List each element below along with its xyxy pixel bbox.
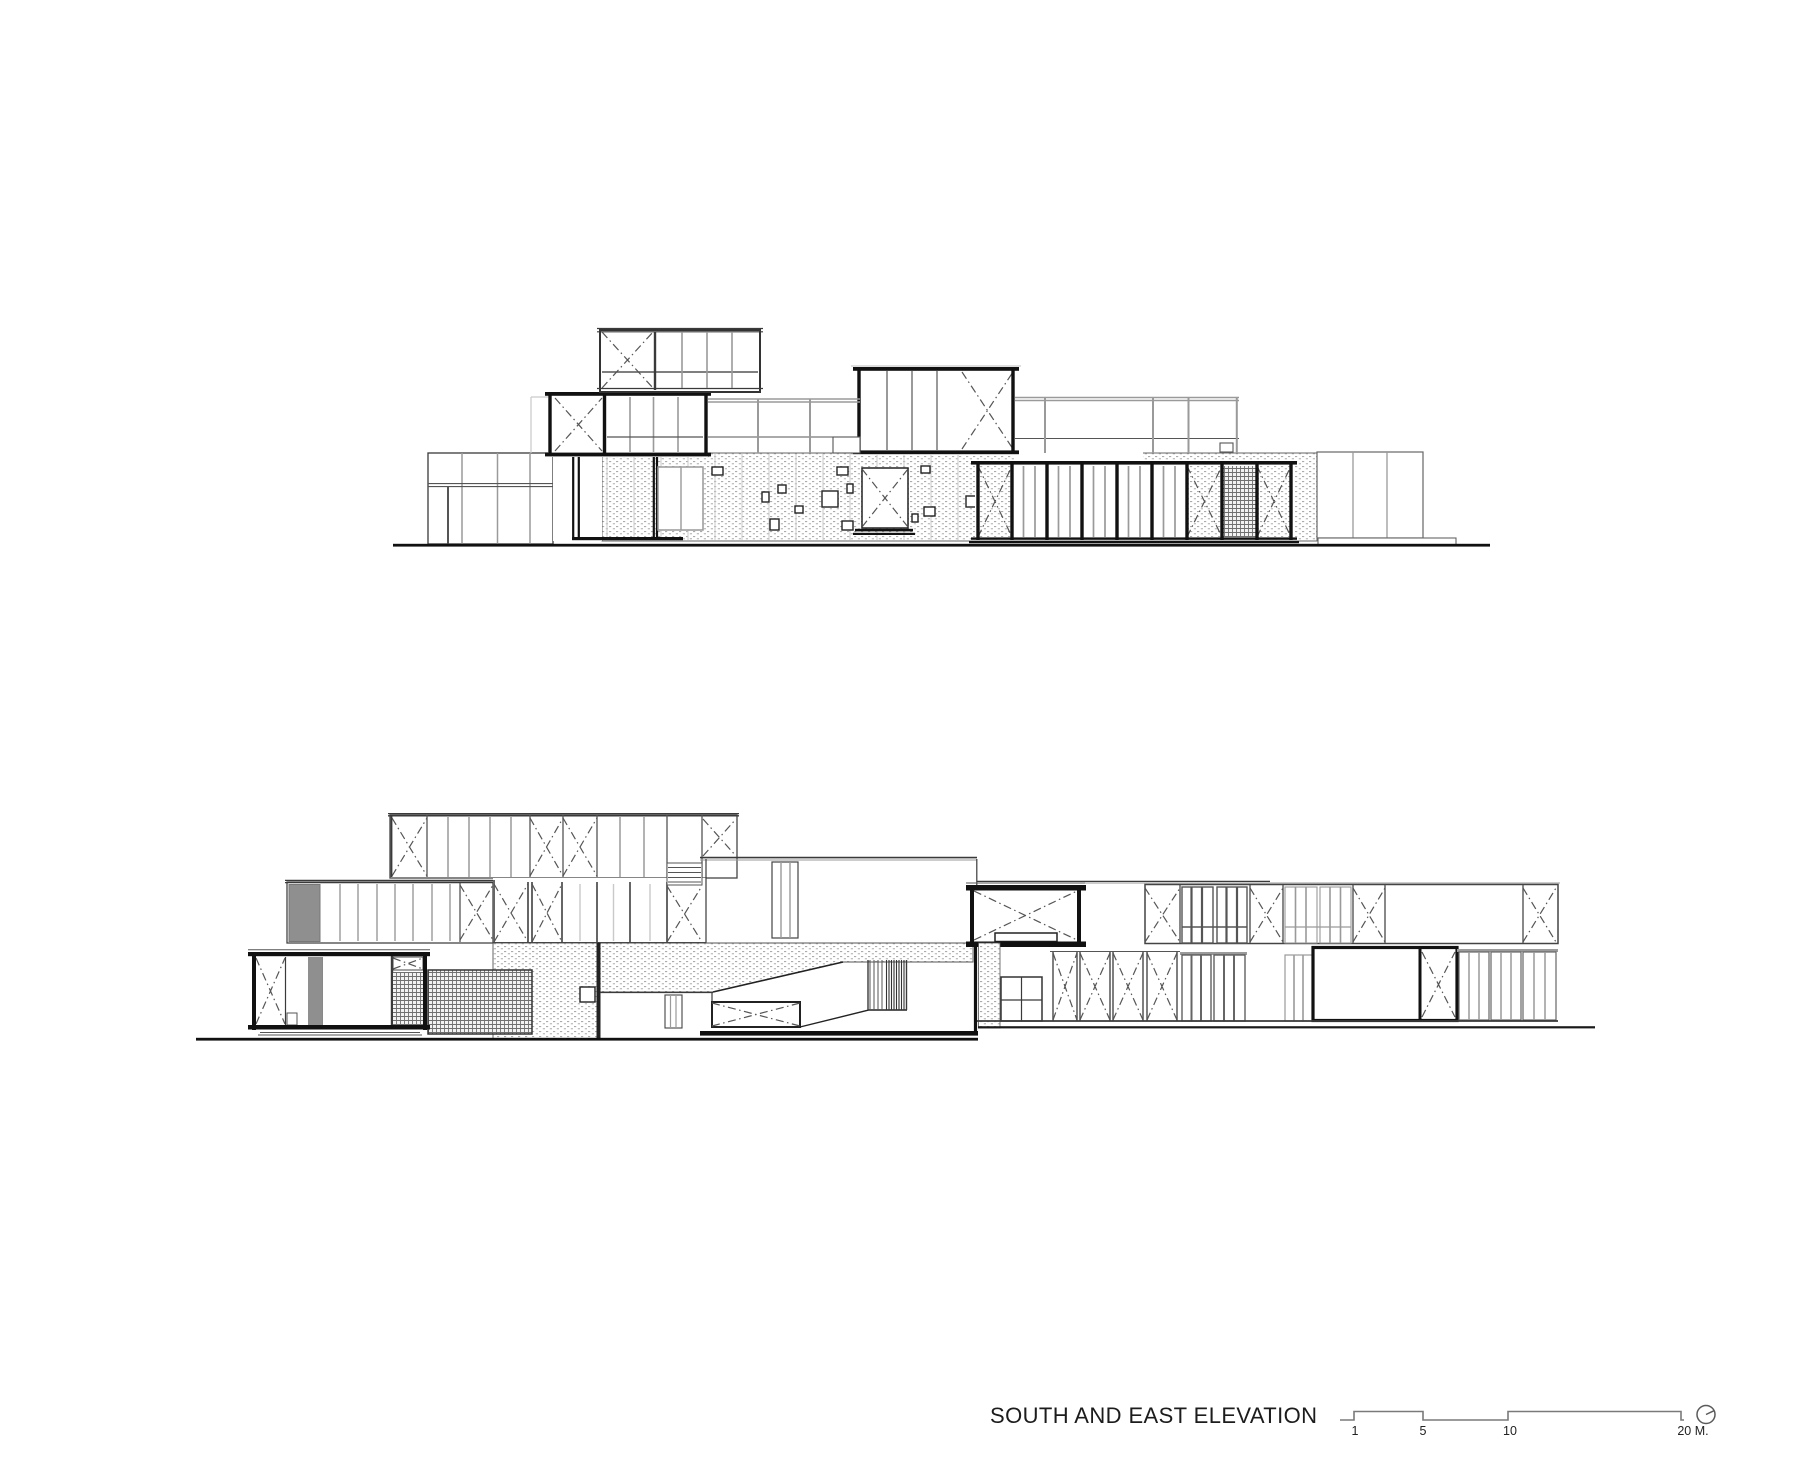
- east-gray-band: [285, 880, 495, 943]
- east-right-building: [966, 881, 1560, 1028]
- south-mid-box: [531, 392, 711, 457]
- braced-doorway: [853, 468, 915, 535]
- gray-stripe-panel: [308, 957, 322, 1025]
- east-ground-line-right: [978, 1026, 1595, 1028]
- scale-tick-20m: 20 M.: [1677, 1424, 1708, 1438]
- south-ground-line: [393, 544, 1490, 547]
- south-right-box: [851, 366, 1021, 455]
- scale-tick-10: 10: [1503, 1424, 1517, 1438]
- south-left-wing: [428, 453, 553, 544]
- basement-window: [665, 995, 682, 1028]
- box-screen-panel: [393, 972, 423, 1025]
- roof-deck: [1014, 399, 1143, 461]
- sheet-background: [0, 0, 1800, 1472]
- stair-x-panel: [712, 1002, 800, 1027]
- screen-wall: [428, 970, 532, 1034]
- right-upper-band: [1085, 883, 1560, 944]
- louver-strip: [667, 863, 702, 885]
- drawing-title: SOUTH AND EAST ELEVATION: [990, 1403, 1317, 1428]
- south-top-box: [597, 329, 763, 393]
- right-lower-window: [1001, 977, 1042, 1021]
- lower-x-bays: [1050, 952, 1180, 1022]
- heavy-sliding-box: [1313, 948, 1457, 1021]
- east-left-box: [248, 950, 430, 1035]
- title-block: SOUTH AND EAST ELEVATION: [990, 1403, 1317, 1428]
- scale-tick-5: 5: [1420, 1424, 1427, 1438]
- elevation-drawing: SOUTH AND EAST ELEVATION 1 5 10 20 M.: [0, 0, 1800, 1472]
- drawing-sheet: SOUTH AND EAST ELEVATION 1 5 10 20 M.: [0, 0, 1800, 1472]
- small-x-panel: [393, 957, 423, 970]
- east-ground-line-left: [196, 1038, 978, 1041]
- south-window-band: [969, 461, 1299, 543]
- rooftop-x-box: [966, 883, 1086, 947]
- scale-tick-1: 1: [1352, 1424, 1359, 1438]
- louver-panel: [1224, 466, 1256, 537]
- solid-gray-panel: [289, 885, 320, 942]
- narrow-window: [772, 862, 798, 938]
